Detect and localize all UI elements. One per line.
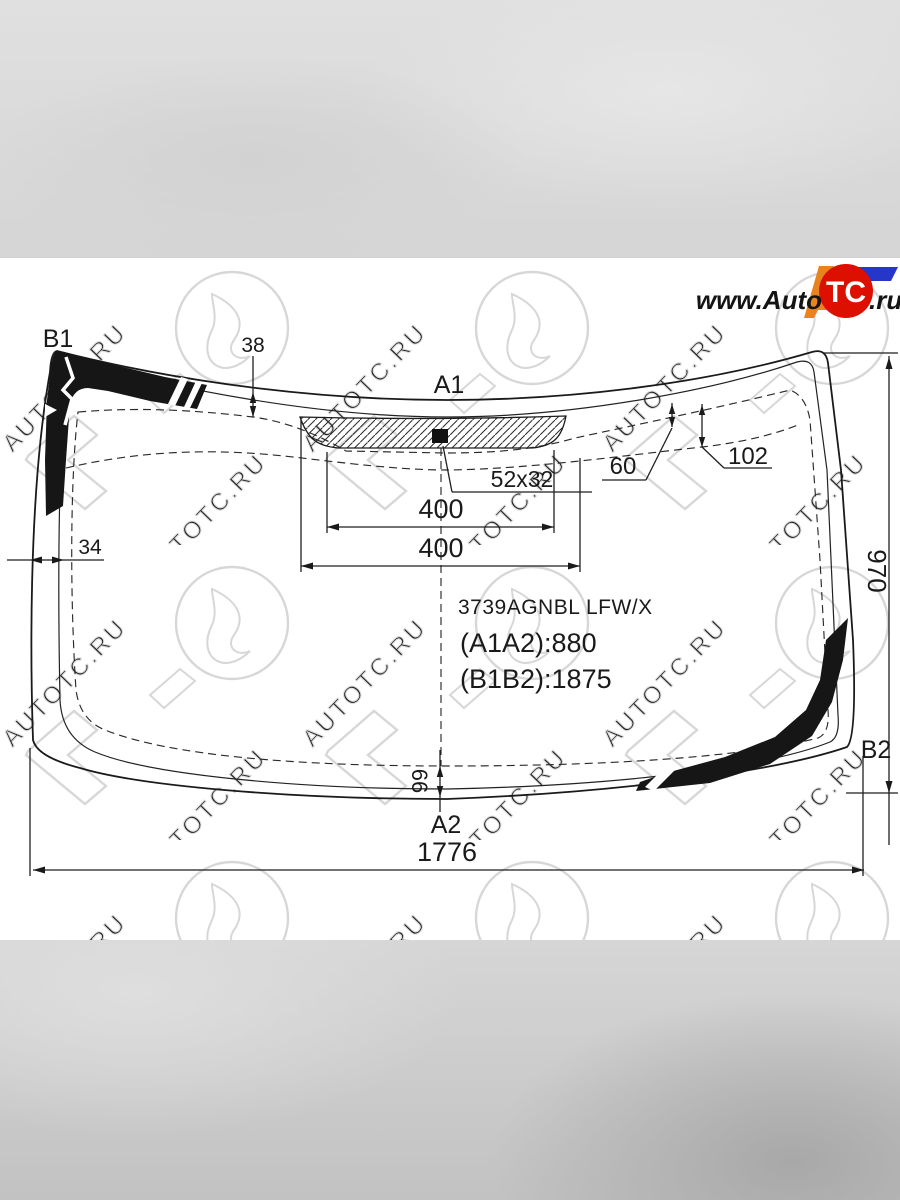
label-a2: A2: [431, 811, 462, 839]
dim-970-label: 970: [862, 549, 892, 592]
shade-band: [300, 416, 566, 448]
dim-400-lower-label: 400: [418, 533, 463, 563]
bottom-letterbox-bar: [0, 940, 900, 1200]
part-number: 3739AGNBL LFW/X: [458, 596, 653, 619]
logo-tc-text: TC: [826, 276, 866, 309]
label-a1: A1: [434, 371, 465, 399]
dim-34-label: 34: [78, 536, 102, 559]
windshield-diagram: AUTOTC.RU AUTOTC.RU: [0, 258, 900, 940]
top-letterbox-bar: [0, 0, 900, 258]
logo-suffix-text: .ru: [869, 285, 900, 315]
dim-38-label: 38: [241, 334, 264, 357]
part-dim-a: (A1A2):880: [460, 628, 597, 658]
mirror-mount-square: [432, 429, 448, 443]
dim-66-label: 66: [407, 769, 432, 793]
logo-prefix-text: www.Auto: [696, 285, 822, 315]
dim-400-upper-label: 400: [418, 494, 463, 524]
part-dim-b: (B1B2):1875: [460, 664, 612, 694]
dim-60-label: 60: [610, 453, 637, 480]
label-b2: B2: [861, 736, 892, 764]
label-b1: B1: [43, 325, 74, 353]
screenshot-root: AUTOTC.RU AUTOTC.RU: [0, 0, 900, 1200]
dim-102-label: 102: [728, 443, 768, 470]
dim-1776-label: 1776: [417, 837, 477, 867]
dim-52x32-label: 52x32: [491, 466, 554, 492]
